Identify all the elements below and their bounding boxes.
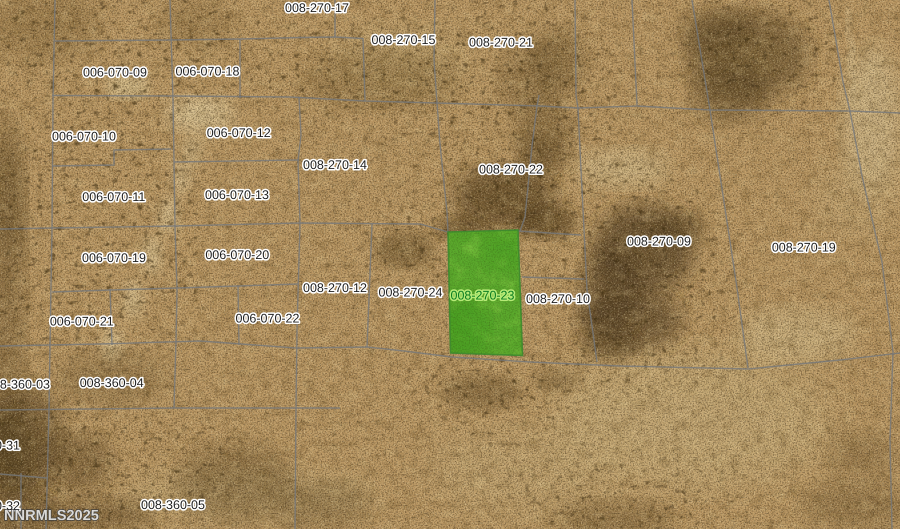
svg-text:008-360-04: 008-360-04 (80, 376, 144, 390)
svg-text:006-070-11: 006-070-11 (82, 190, 145, 204)
svg-text:006-070-10: 006-070-10 (52, 130, 116, 144)
svg-text:006-070-13: 006-070-13 (205, 188, 269, 202)
svg-text:008-270-12: 008-270-12 (303, 281, 367, 295)
svg-text:008-270-15: 008-270-15 (372, 33, 436, 47)
svg-text:008-270-22: 008-270-22 (479, 163, 543, 177)
svg-text:006-070-18: 006-070-18 (176, 65, 240, 79)
svg-text:008-360-03: 008-360-03 (0, 378, 50, 392)
svg-text:008-270-19: 008-270-19 (772, 241, 836, 255)
svg-text:NNRMLS2025: NNRMLS2025 (4, 508, 99, 524)
svg-text:006-070-09: 006-070-09 (83, 66, 147, 80)
svg-text:006-070-21: 006-070-21 (50, 315, 114, 329)
svg-text:008-270-21: 008-270-21 (469, 36, 533, 50)
svg-text:008-270-23: 008-270-23 (451, 289, 515, 303)
svg-text:006-070-12: 006-070-12 (207, 126, 271, 140)
svg-text:008-270-10: 008-270-10 (526, 292, 590, 306)
svg-text:008-270-09: 008-270-09 (627, 235, 691, 249)
svg-text:008-360-31: 008-360-31 (0, 439, 20, 453)
svg-text:006-070-20: 006-070-20 (205, 248, 269, 262)
svg-text:008-270-24: 008-270-24 (379, 286, 443, 300)
svg-text:008-270-14: 008-270-14 (303, 158, 367, 172)
svg-text:006-070-19: 006-070-19 (82, 251, 146, 265)
svg-text:008-270-17: 008-270-17 (285, 1, 349, 15)
svg-text:008-360-05: 008-360-05 (141, 498, 205, 512)
svg-text:006-070-22: 006-070-22 (236, 311, 300, 325)
